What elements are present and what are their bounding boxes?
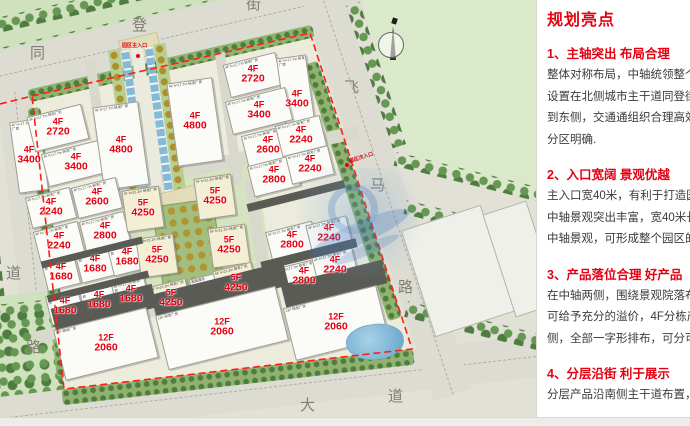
building-area-value: 1680 (83, 264, 106, 275)
section-text-line: 可给予充分的溢价，4F分栋产 (547, 307, 690, 329)
building-label: 12F 2060 (210, 317, 233, 337)
section-heading: 2、入口宽阔 景观优越 (547, 164, 690, 183)
building-area-value: 1680 (115, 257, 138, 268)
section-text-line: 设置在北侧城市主干道同登街 (547, 87, 690, 109)
building-label: 4F 2240 (47, 231, 70, 251)
building-label: 4F 4800 (183, 111, 206, 131)
building-label: 5F 4250 (145, 245, 168, 265)
section-text-line: 到东侧，交通通组织合理高效 (547, 108, 690, 130)
building-label: 4F 2800 (262, 165, 285, 185)
building-label: 4F 2600 (85, 187, 108, 207)
entrance-marker-icon (345, 163, 349, 167)
building-area-value: 4800 (109, 145, 132, 156)
building-area-value: 4250 (217, 245, 240, 256)
watermark-logo (298, 168, 432, 280)
building-area-value: 2800 (262, 175, 285, 186)
road-name-char: 道 (388, 385, 403, 406)
building-label: 5F 4250 (159, 288, 182, 308)
entrance-marker-icon (136, 54, 140, 58)
slide: 4F h=17.7m 研发厂房4F h=17.7m 研发厂房4F h=17.7m… (0, 0, 690, 426)
building-area-value: 4800 (183, 121, 206, 132)
building-area-value: 4250 (203, 196, 226, 207)
building-label: 4F 2600 (256, 135, 279, 155)
section-heading: 1、主轴突出 布局合理 (547, 43, 690, 62)
section-text-line: 侧，全部一字形排布，可分可 (547, 329, 690, 351)
building-label: 12F 2060 (324, 312, 347, 332)
road-name-char: 路 (26, 336, 41, 357)
building-label: 5F 4250 (203, 186, 226, 206)
section-text-line: 在中轴两侧，围绕景观院落布 (547, 286, 690, 308)
building-area-value: 3400 (285, 99, 308, 110)
site-plan-map: 4F h=17.7m 研发厂房4F h=17.7m 研发厂房4F h=17.7m… (0, 0, 537, 417)
building-label: 4F 2800 (93, 221, 116, 241)
building-label: 12F 2060 (94, 333, 117, 353)
labels-layer: 4F 34004F 27204F 34004F 48004F 48004F 22… (0, 0, 537, 417)
building-area-value: 4250 (159, 298, 182, 309)
section-text-line: 中轴景观突出丰富，宽40米长 (547, 208, 690, 230)
building-label: 4F 1680 (83, 254, 106, 274)
highlights-panel: 规划亮点 1、主轴突出 布局合理整体对称布局，中轴统领整个设置在北侧城市主干道同… (538, 0, 690, 417)
building-area-value: 3400 (247, 110, 270, 121)
road-name-char: 同 (30, 42, 45, 63)
building-area-value: 2240 (47, 241, 70, 252)
panel-title: 规划亮点 (547, 6, 690, 30)
building-label: 4F 3400 (285, 89, 308, 109)
building-area-value: 2720 (241, 74, 264, 85)
panel-sections: 1、主轴突出 布局合理整体对称布局，中轴统领整个设置在北侧城市主干道同登街到东侧… (547, 43, 690, 407)
building-label: 4F 1680 (87, 290, 110, 310)
building-area-value: 4250 (145, 255, 168, 266)
building-label: 4F 3400 (64, 152, 87, 172)
section-text-line: 分区明确. (547, 130, 690, 152)
building-label: 4F 2720 (46, 117, 69, 137)
building-label: 4F 3400 (17, 145, 40, 165)
building-label: 4F 1680 (49, 262, 72, 282)
building-label: 4F 1680 (115, 247, 138, 267)
building-label: 5F 4250 (131, 198, 154, 218)
building-label: 5F 4250 (224, 273, 247, 293)
section-heading: 3、产品落位合理 好产品 (547, 264, 690, 283)
building-area-value: 3400 (17, 155, 40, 166)
building-area-value: 4250 (131, 208, 154, 219)
building-area-value: 2720 (46, 127, 69, 138)
building-area-value: 1680 (87, 300, 110, 311)
building-label: 4F 2720 (241, 64, 264, 84)
road-name-char: 登 (132, 14, 147, 35)
building-area-value: 2240 (289, 135, 312, 146)
building-area-value: 2060 (210, 327, 233, 338)
building-area-value: 1680 (53, 306, 76, 317)
building-label: 4F 3400 (247, 100, 270, 120)
section-text-line: 分层产品沿南侧主干道布置， (547, 385, 690, 407)
building-label: 4F 1680 (53, 296, 76, 316)
building-area-value: 2600 (256, 145, 279, 156)
entrance-label: 园区次入口 (348, 150, 374, 165)
building-label: 4F 2240 (39, 197, 62, 217)
road-name-char: 道 (6, 262, 21, 283)
section-text-line: 主入口宽40米，有利于打造园 (547, 186, 690, 208)
road-name-char: 街 (246, 0, 261, 14)
north-compass-icon (374, 18, 408, 68)
building-label: 4F 1680 (119, 284, 142, 304)
building-area-value: 2240 (39, 207, 62, 218)
building-area-value: 4250 (224, 283, 247, 294)
building-area-value: 1680 (49, 272, 72, 283)
entrance-label: 园区主入口 (122, 42, 147, 49)
section-heading: 4、分层沿街 利于展示 (547, 363, 690, 382)
section-text-line: 整体对称布局，中轴统领整个 (547, 65, 690, 87)
building-area-value: 2800 (93, 231, 116, 242)
building-area-value: 1680 (119, 294, 142, 305)
building-area-value: 3400 (64, 162, 87, 173)
road-name-char: 大 (300, 394, 315, 415)
bottom-strip (0, 417, 690, 426)
building-area-value: 2060 (94, 343, 117, 354)
building-area-value: 2600 (85, 197, 108, 208)
building-label: 5F 4250 (217, 235, 240, 255)
building-label: 4F 4800 (109, 135, 132, 155)
building-label: 4F 2240 (289, 125, 312, 145)
section-text-line: 中轴景观，可形成整个园区的 (547, 229, 690, 251)
building-area-value: 2060 (324, 322, 347, 333)
road-name-char: 飞 (344, 76, 359, 97)
